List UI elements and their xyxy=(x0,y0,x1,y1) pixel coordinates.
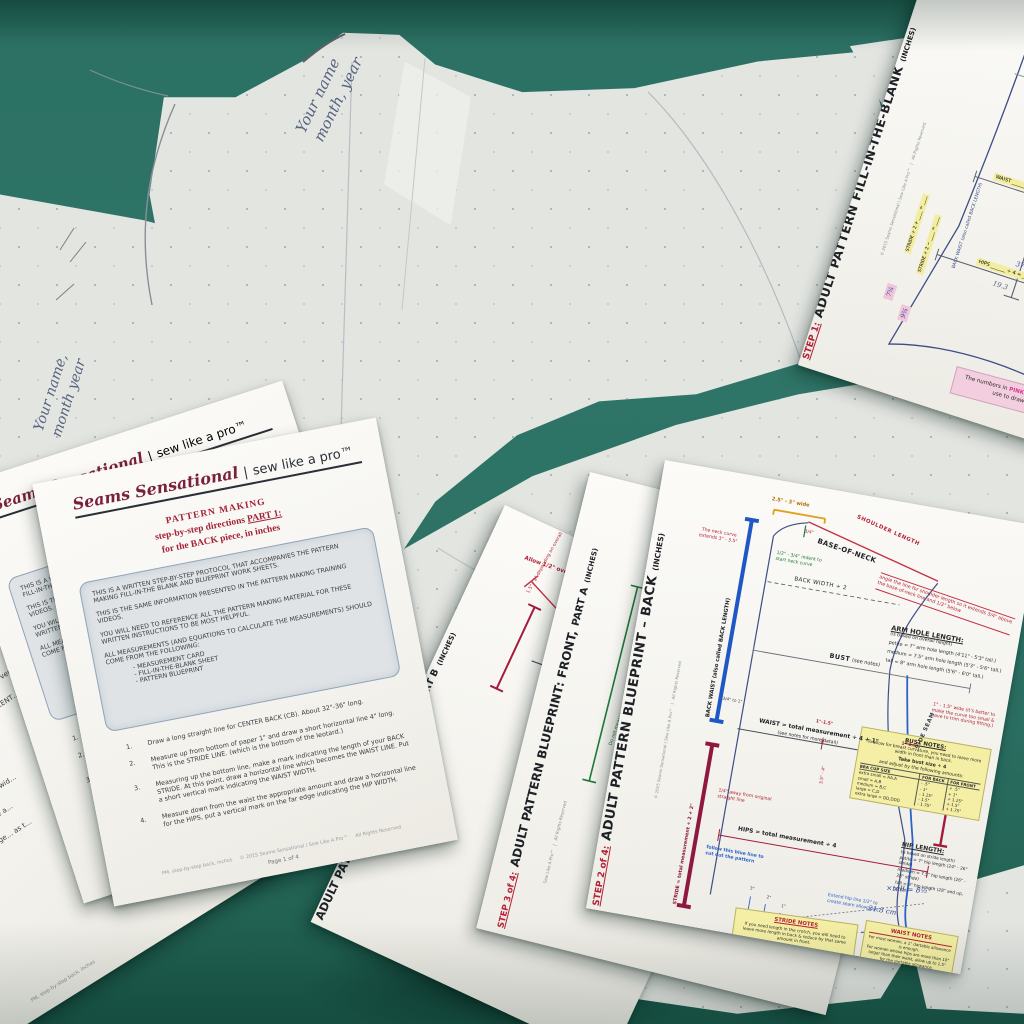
step-label: STEP 3 of 4: xyxy=(496,871,520,929)
item-number: 1. xyxy=(125,739,148,751)
item-number: 2. xyxy=(129,756,154,776)
item-text: DOUB… toge… as t… xyxy=(0,818,33,865)
rights-sep: | xyxy=(908,160,915,168)
brand-divider: | xyxy=(242,465,249,481)
rights-sep: | xyxy=(551,841,557,849)
handwritten-stride-front: 9¾ xyxy=(899,307,910,319)
photo-of-pattern-making-materials: Your name month, year Your name, month y… xyxy=(0,0,1024,1024)
handwritten-stride-back: 7¾ xyxy=(885,285,896,297)
crotch-tick-3: 3" xyxy=(750,885,755,891)
crotch-tick-2: 2" xyxy=(766,894,771,900)
footer-sep xyxy=(234,857,239,863)
crotch-tick-1: 1" xyxy=(781,903,786,909)
title-part: PART A xyxy=(571,586,591,627)
item-number: 4. xyxy=(140,813,165,833)
footer-sep xyxy=(349,834,354,840)
footer-fragment: PM, step-by-step back, inches xyxy=(30,959,96,1004)
title-suffix: (INCHES) xyxy=(583,547,599,584)
title-suffix: (INCHES) xyxy=(899,27,918,63)
blueprint-back-sheet: STEP 2 of 4: ADULT PATTERN BLUEPRINT – B… xyxy=(586,460,1024,974)
rights-text: All Rights Reserved xyxy=(910,122,927,160)
